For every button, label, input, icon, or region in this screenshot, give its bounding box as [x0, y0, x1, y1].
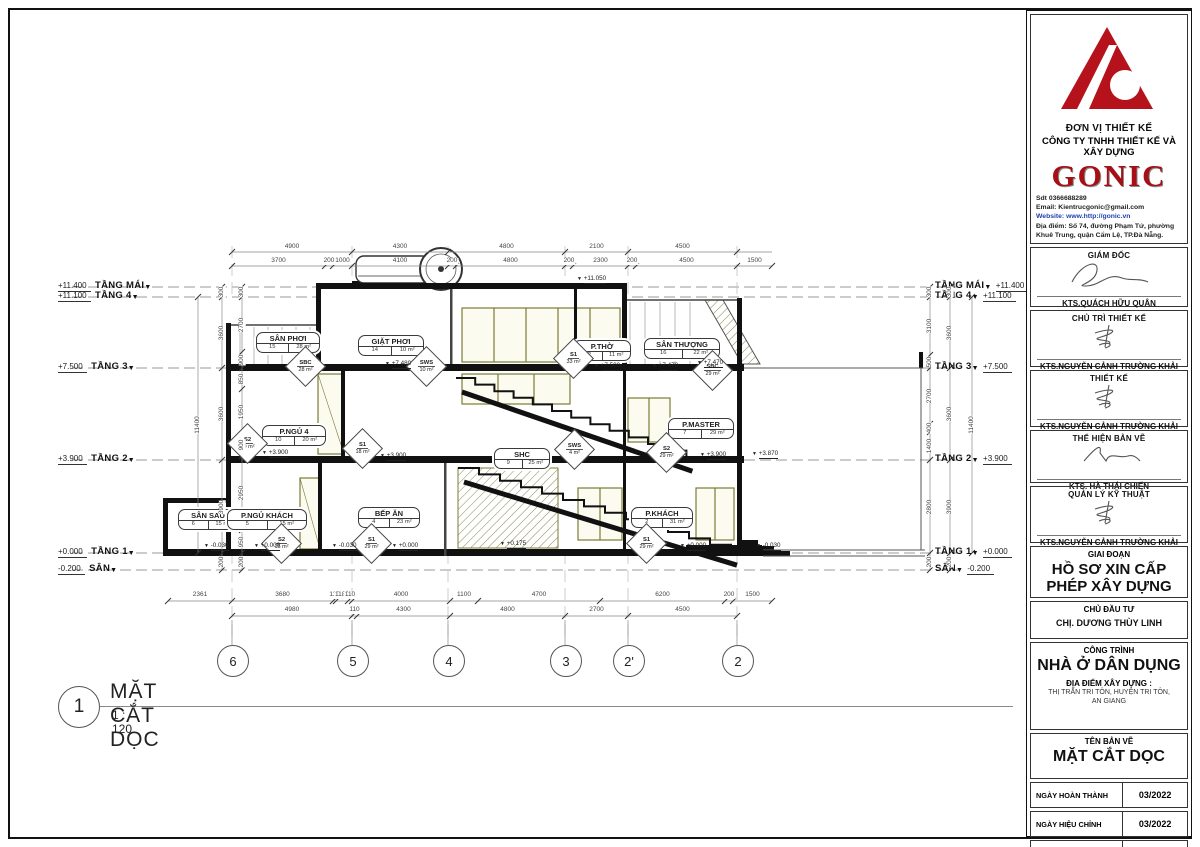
sheet-code-row: KÍ HIỆU BẢN VẼ KT V08: [1030, 840, 1188, 847]
role-cell-chu-tri: CHỦ TRÌ THIẾT KẾ KTS.NGUYỄN CẢNH TRƯỜNG …: [1030, 310, 1188, 367]
design-unit-label: ĐƠN VỊ THIẾT KẾ: [1031, 123, 1187, 134]
role-title: THIẾT KẾ: [1031, 374, 1187, 383]
role-title: CHỦ TRÌ THIẾT KẾ: [1031, 314, 1187, 323]
project-label: CÔNG TRÌNH: [1031, 646, 1187, 655]
view-number-bubble: 1: [58, 686, 100, 728]
stage-line2: PHÉP XÂY DỰNG: [1033, 578, 1185, 595]
date-finished-label: NGÀY HOÀN THÀNH: [1031, 791, 1122, 800]
website: Website: www.http://gonic.vn: [1036, 212, 1182, 221]
site-line2: AN GIANG: [1031, 697, 1187, 706]
site-label: ĐỊA ĐIỂM XÂY DỰNG :: [1031, 679, 1187, 688]
phone: Sdt 0366688289: [1036, 194, 1182, 203]
owner-name: CHỊ. DƯƠNG THÙY LINH: [1031, 618, 1187, 628]
stage-value: HỒ SƠ XIN CẤP PHÉP XÂY DỰNG: [1033, 561, 1185, 596]
project-cell: CÔNG TRÌNH NHÀ Ở DÂN DỤNG ĐỊA ĐIỂM XÂY D…: [1030, 642, 1188, 730]
date-finished-value: 03/2022: [1122, 783, 1187, 807]
project-name: NHÀ Ở DÂN DỤNG: [1033, 657, 1185, 675]
company-cell: ĐƠN VỊ THIẾT KẾ CÔNG TY TNHH THIẾT KẾ VÀ…: [1030, 14, 1188, 244]
date-revised-row: NGÀY HIỆU CHỈNH 03/2022: [1030, 811, 1188, 837]
title-block: ĐƠN VỊ THIẾT KẾ CÔNG TY TNHH THIẾT KẾ VÀ…: [1026, 10, 1192, 837]
sheet-name-label: TÊN BẢN VẼ: [1031, 737, 1187, 746]
sheet-name: MẶT CẮT DỌC: [1033, 748, 1185, 766]
role-cell-giam-doc: GIÁM ĐỐC KTS.QUÁCH HỮU QUÂN: [1030, 247, 1188, 307]
gonic-logo: [1059, 23, 1159, 115]
contact-info: Sdt 0366688289 Email: Kientrucgonic@gmai…: [1031, 191, 1187, 244]
role-name: KTS.QUÁCH HỮU QUÂN: [1037, 296, 1181, 308]
sheet-code-value: KT V08: [1122, 841, 1187, 847]
signature: [1079, 383, 1139, 413]
drawing-sheet: SÂN PHƠI1528 m²GIẶT PHƠI1410 m²P.THỜ1211…: [0, 0, 1200, 847]
signature: [1079, 323, 1139, 353]
sheet-name-cell: TÊN BẢN VẼ MẶT CẮT DỌC: [1030, 733, 1188, 779]
title-underline: [98, 706, 1013, 707]
stage-label: GIAI ĐOẠN: [1031, 550, 1187, 559]
signature: [1074, 443, 1144, 473]
address: Địa điểm: Số 74, đường Phạm Tứ, phường K…: [1036, 222, 1182, 240]
date-revised-value: 03/2022: [1122, 812, 1187, 836]
date-revised-label: NGÀY HIỆU CHỈNH: [1031, 820, 1122, 829]
signature: [1064, 260, 1154, 290]
role-title: GIÁM ĐỐC: [1031, 251, 1187, 260]
signature: [1079, 499, 1139, 529]
owner-cell: CHỦ ĐẦU TƯ CHỊ. DƯƠNG THÙY LINH: [1030, 601, 1188, 639]
role-cell-quan-ly: QUẢN LÝ KỸ THUẬT KTS.NGUYỄN CẢNH TRƯỜNG …: [1030, 486, 1188, 543]
stage-cell: GIAI ĐOẠN HỒ SƠ XIN CẤP PHÉP XÂY DỰNG: [1030, 546, 1188, 598]
brand-gonic: GONIC: [1031, 160, 1187, 191]
owner-label: CHỦ ĐẦU TƯ: [1031, 605, 1187, 614]
stage-line1: HỒ SƠ XIN CẤP: [1033, 561, 1185, 578]
role-title: THỂ HIỆN BẢN VẼ: [1031, 434, 1187, 443]
role-cell-the-hien: THỂ HIỆN BẢN VẼ KTS. HÀ THÁI CHIẾN: [1030, 430, 1188, 483]
role-cell-thiet-ke: THIẾT KẾ KTS.NGUYỄN CẢNH TRƯỜNG KHẢI: [1030, 370, 1188, 427]
email: Email: Kientrucgonic@gmail.com: [1036, 203, 1182, 212]
company-name: CÔNG TY TNHH THIẾT KẾ VÀ XÂY DỰNG: [1031, 134, 1187, 160]
view-scale: 1 : 120: [112, 708, 132, 736]
site-line1: THỊ TRẤN TRI TÔN, HUYỆN TRI TÔN,: [1031, 688, 1187, 697]
date-finished-row: NGÀY HOÀN THÀNH 03/2022: [1030, 782, 1188, 808]
role-title: QUẢN LÝ KỸ THUẬT: [1031, 490, 1187, 499]
